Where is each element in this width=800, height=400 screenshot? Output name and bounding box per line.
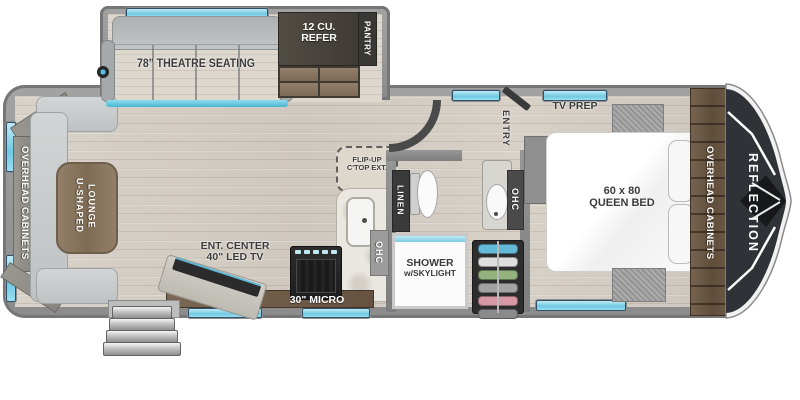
bedroom-dresser bbox=[524, 136, 548, 204]
shower-label: SHOWER w/SKYLIGHT bbox=[393, 258, 467, 278]
refer-drawers bbox=[278, 66, 360, 98]
wardrobe bbox=[472, 240, 524, 314]
entry-label: ENTRY bbox=[498, 106, 512, 150]
bath-faucet bbox=[494, 212, 498, 216]
ohc-kitchen-label: OHC bbox=[370, 231, 387, 273]
ent-center-label: ENT. CENTER 40" LED TV bbox=[168, 241, 302, 263]
ohc-bath-label: OHC bbox=[507, 172, 522, 226]
theatre-seat-cushions bbox=[110, 44, 284, 104]
theatre-seating-label: 78" THEATRE SEATING bbox=[122, 58, 269, 70]
linen-label: LINEN bbox=[392, 172, 408, 228]
pantry-label: PANTRY bbox=[358, 13, 375, 63]
queen-bed-label: 60 x 80 QUEEN BED bbox=[562, 186, 682, 209]
rv-floorplan: OVERHEAD CABINETS U-SHAPED LOUNGE 78" TH… bbox=[0, 0, 800, 400]
reflection-brand: REFLECTION bbox=[744, 138, 762, 268]
step-4 bbox=[103, 342, 181, 356]
theatre-cupholder-left bbox=[97, 66, 109, 78]
theatre-front-accent bbox=[106, 100, 288, 107]
toilet bbox=[410, 170, 436, 216]
bedroom-rug-bottom bbox=[612, 268, 666, 302]
micro-label: 30" MICRO bbox=[282, 295, 352, 306]
u-lounge-label: U-SHAPED LOUNGE bbox=[60, 168, 110, 244]
kitchen-faucet bbox=[362, 218, 367, 223]
window-bottom-2 bbox=[302, 308, 370, 318]
tv-prep-label: TV PREP bbox=[540, 101, 610, 112]
door-swing-arc bbox=[380, 92, 450, 162]
refrigerator-label: 12 CU. REFER bbox=[280, 22, 358, 44]
u-lounge-seat-bottom bbox=[36, 268, 118, 304]
window-top-1 bbox=[452, 90, 500, 101]
